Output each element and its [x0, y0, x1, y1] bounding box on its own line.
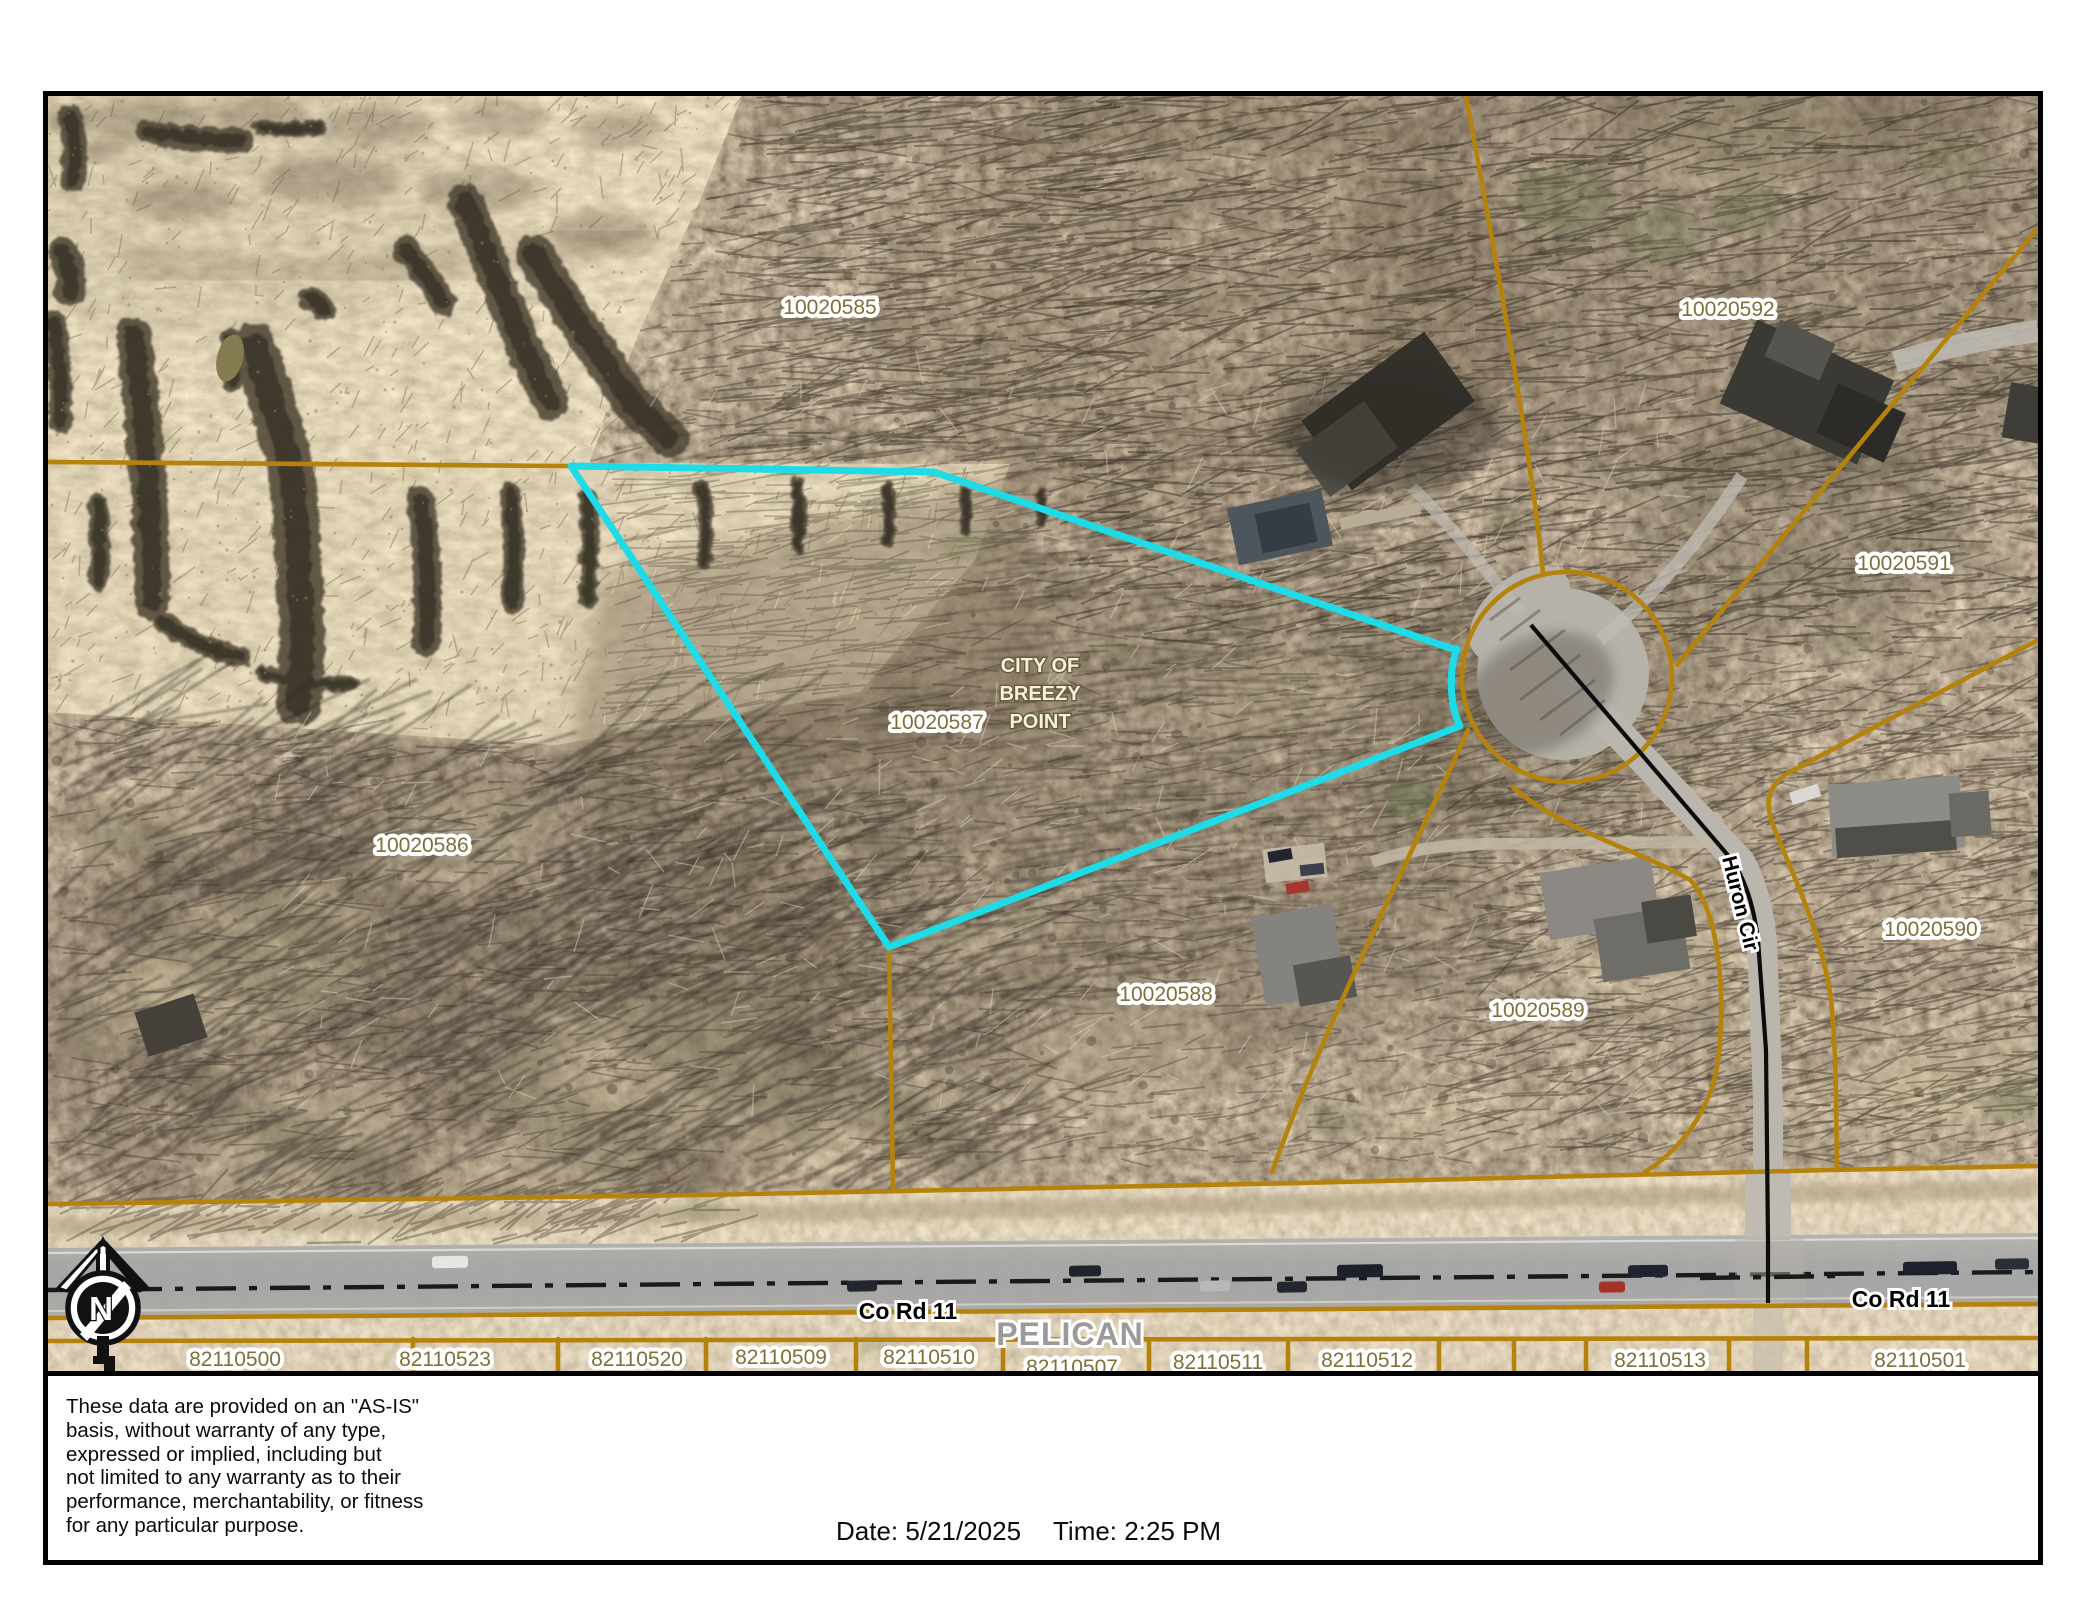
svg-text:82110510: 82110510: [883, 1346, 975, 1369]
svg-text:basis, without warranty of any: basis, without warranty of any type,: [66, 1419, 386, 1442]
svg-text:10020587: 10020587: [890, 711, 983, 734]
svg-text:Time: 2:25 PM: Time: 2:25 PM: [1053, 1516, 1221, 1546]
svg-text:N: N: [89, 1290, 113, 1327]
svg-text:BREEZY: BREEZY: [999, 683, 1081, 705]
svg-text:82110511: 82110511: [1173, 1351, 1263, 1374]
svg-text:10020589: 10020589: [1491, 999, 1584, 1022]
svg-text:CITY OF: CITY OF: [1001, 655, 1080, 677]
svg-text:expressed or implied, includin: expressed or implied, including but: [66, 1443, 382, 1466]
svg-text:82110513: 82110513: [1614, 1349, 1706, 1372]
svg-text:10020585: 10020585: [783, 296, 876, 319]
svg-text:10020591: 10020591: [1857, 552, 1950, 575]
svg-text:82110512: 82110512: [1321, 1349, 1413, 1372]
svg-text:10020592: 10020592: [1681, 298, 1774, 321]
svg-text:for any particular purpose.: for any particular purpose.: [66, 1514, 304, 1537]
svg-text:82110501: 82110501: [1874, 1349, 1966, 1372]
svg-text:These data are provided on an: These data are provided on an "AS-IS": [66, 1395, 419, 1418]
svg-text:10020586: 10020586: [375, 834, 468, 857]
svg-text:not limited to any warranty as: not limited to any warranty as to their: [66, 1466, 401, 1489]
svg-text:POINT: POINT: [1009, 711, 1070, 733]
svg-text:82110520: 82110520: [591, 1348, 683, 1371]
svg-text:Co Rd 11: Co Rd 11: [1852, 1286, 1951, 1312]
svg-text:82110509: 82110509: [735, 1346, 827, 1369]
svg-text:performance, merchantability,: performance, merchantability, or fitness: [66, 1490, 423, 1513]
svg-text:82110523: 82110523: [399, 1348, 491, 1371]
svg-text:Date: 5/21/2025: Date: 5/21/2025: [836, 1516, 1021, 1546]
svg-text:10020588: 10020588: [1119, 983, 1212, 1006]
svg-text:PELICAN: PELICAN: [996, 1316, 1143, 1352]
svg-text:82110500: 82110500: [189, 1348, 281, 1371]
svg-text:Co Rd 11: Co Rd 11: [859, 1298, 958, 1324]
svg-text:10020590: 10020590: [1884, 918, 1977, 941]
